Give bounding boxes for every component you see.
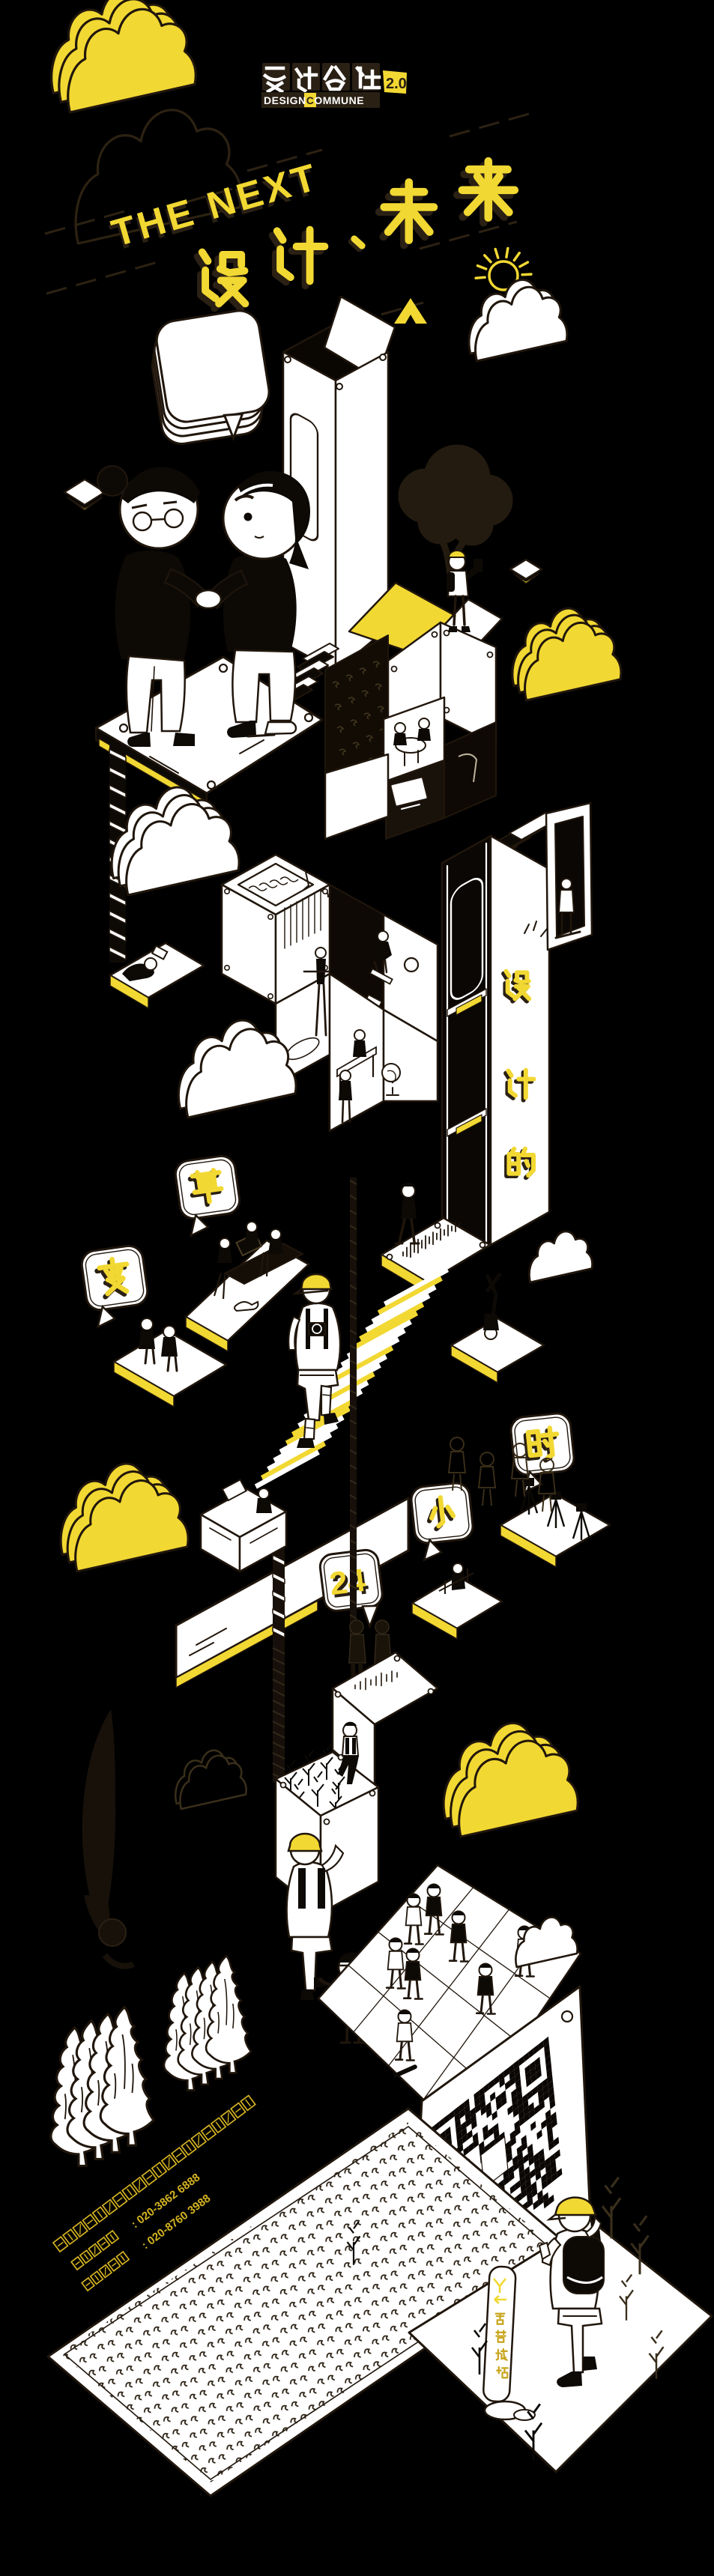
svg-text:DESIGNCOMMUNE: DESIGNCOMMUNE [264,94,364,106]
svg-text:2.0: 2.0 [386,76,407,92]
svg-text:24: 24 [327,1563,367,1602]
